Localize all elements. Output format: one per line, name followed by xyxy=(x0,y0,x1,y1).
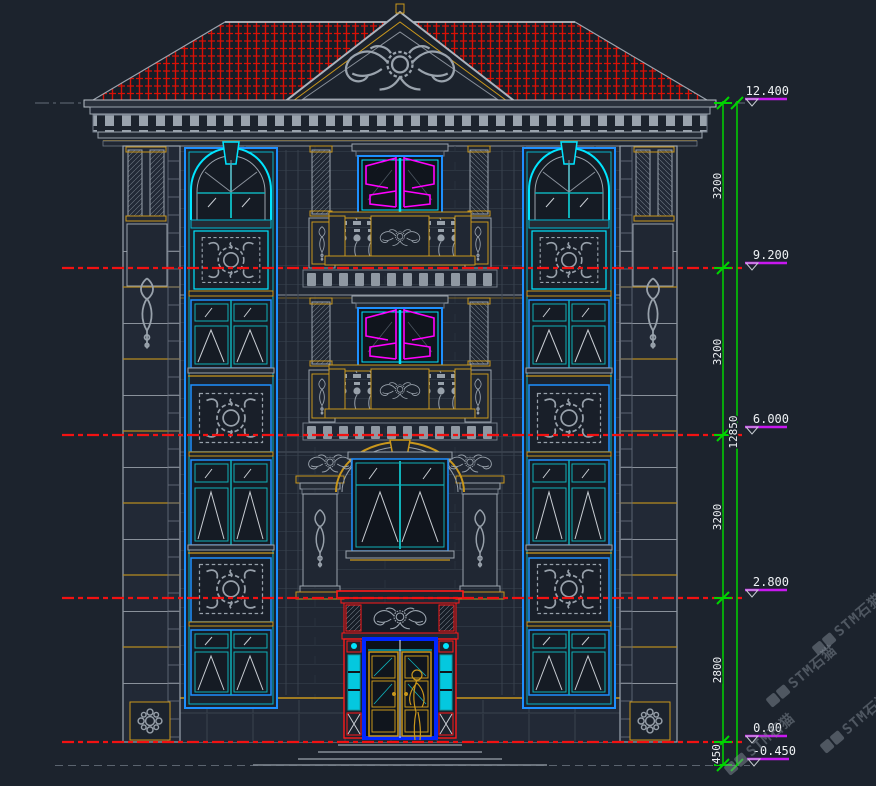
balcony-upper xyxy=(303,212,497,287)
door-knob xyxy=(392,692,396,696)
tower-right xyxy=(523,142,615,708)
svg-text:2.800: 2.800 xyxy=(753,575,789,589)
door-leaf-left xyxy=(369,652,398,736)
tower-window xyxy=(188,300,274,376)
svg-text:6.000: 6.000 xyxy=(753,412,789,426)
arch-pilaster-left xyxy=(296,476,344,599)
tower-arched-window xyxy=(189,142,273,296)
sidelight xyxy=(348,655,360,710)
balcony-lower xyxy=(303,365,497,440)
tower-window xyxy=(188,460,274,553)
svg-text:12.400: 12.400 xyxy=(746,84,789,98)
dim-text-seg1: 3200 xyxy=(711,173,724,200)
tower-window xyxy=(191,630,271,695)
dentil-band xyxy=(93,115,707,132)
tower-left xyxy=(185,142,277,708)
base-rosette-panel xyxy=(130,702,170,740)
corner-pilaster-left xyxy=(123,146,180,742)
dim-text-seg2: 3200 xyxy=(711,339,724,366)
tower-ornament-panel xyxy=(189,385,273,456)
door-leaf-right xyxy=(402,652,431,736)
tower-ornament-panel xyxy=(189,558,273,626)
elevation-drawing: 3200 3200 3200 2800 450 12850 12.400 9.2… xyxy=(0,0,876,786)
portal-post-right xyxy=(436,639,456,738)
dim-text-seg4: 2800 xyxy=(711,657,724,684)
cad-canvas: 3200 3200 3200 2800 450 12850 12.400 9.2… xyxy=(0,0,876,786)
dim-text-seg5: 450 xyxy=(710,744,723,764)
entrance-portal xyxy=(337,591,463,740)
dim-text-overall: 12850 xyxy=(727,415,740,448)
colonnette xyxy=(128,150,142,216)
arch-pilaster-right xyxy=(456,476,504,599)
portal-post-left xyxy=(344,639,364,738)
svg-text:9.200: 9.200 xyxy=(753,248,789,262)
arch-window xyxy=(346,452,454,560)
dim-text-seg3: 3200 xyxy=(711,504,724,531)
corner-pilaster-right xyxy=(620,146,677,742)
